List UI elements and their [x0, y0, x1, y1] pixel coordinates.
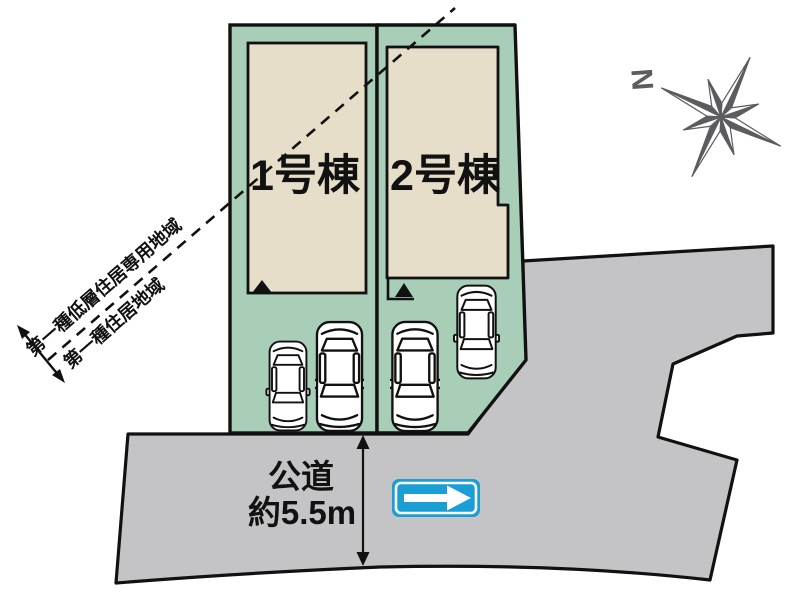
car-3 — [388, 322, 441, 431]
site-plan: 第一種低層住居専用地域 第一種住居地域 1号棟 2号棟 公道 約5.5m — [0, 0, 800, 600]
car-2 — [313, 322, 366, 431]
building-1-label: 1号棟 — [250, 152, 361, 200]
road-width-label: 約5.5m — [248, 494, 356, 531]
site-plan-svg: 第一種低層住居専用地域 第一種住居地域 1号棟 2号棟 公道 約5.5m — [0, 0, 800, 600]
car-1 — [266, 342, 309, 431]
car-4 — [454, 286, 499, 379]
compass-north-label: N — [626, 67, 660, 91]
compass-rose-icon: N — [597, 11, 800, 205]
one-way-sign — [392, 479, 480, 517]
road-label: 公道 — [268, 458, 334, 495]
building-2-label: 2号棟 — [390, 152, 501, 200]
